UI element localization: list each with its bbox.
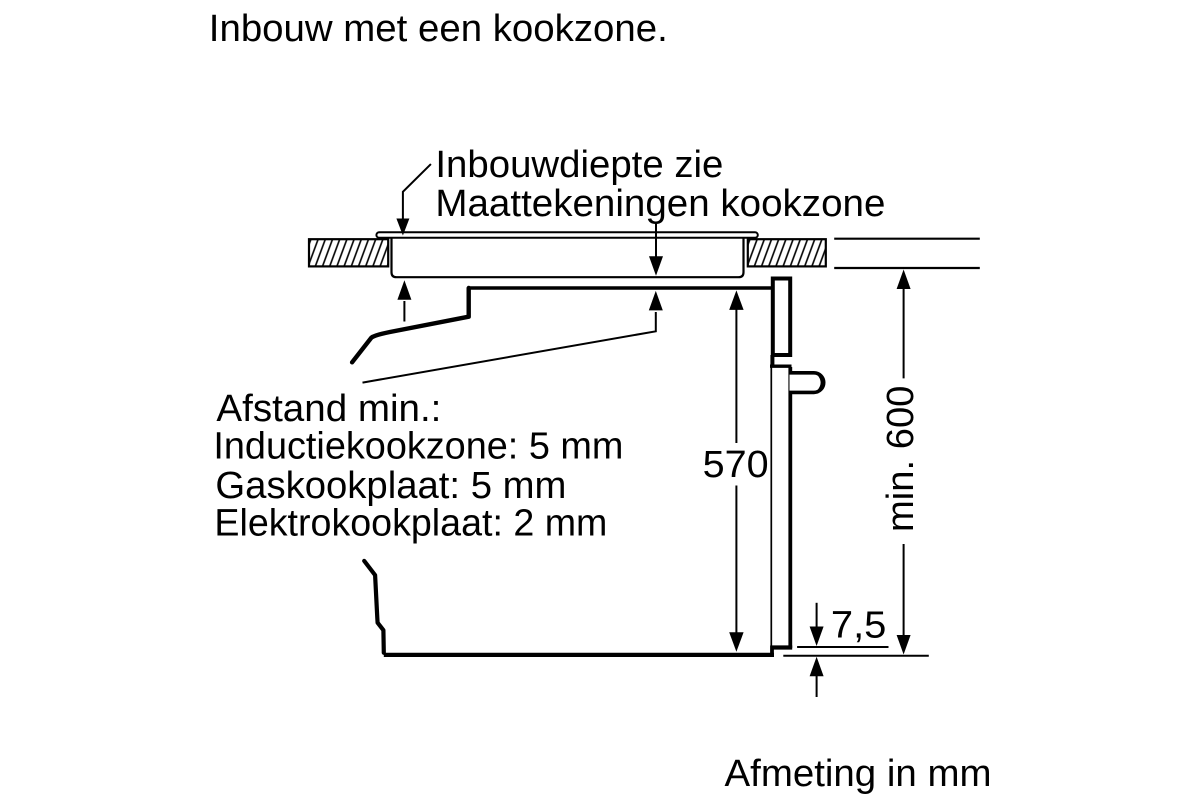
svg-text:Inbouw met een kookzone.: Inbouw met een kookzone.	[209, 8, 668, 50]
svg-text:Maattekeningen kookzone: Maattekeningen kookzone	[435, 183, 885, 225]
svg-text:7,5: 7,5	[831, 604, 887, 646]
svg-text:Afstand min.:: Afstand min.:	[216, 388, 441, 430]
svg-text:Inductiekookzone: 5 mm: Inductiekookzone: 5 mm	[213, 425, 623, 467]
svg-text:Inbouwdiepte zie: Inbouwdiepte zie	[435, 144, 723, 186]
svg-text:Afmeting in mm: Afmeting in mm	[725, 753, 992, 795]
svg-text:Elektrokookplaat: 2 mm: Elektrokookplaat: 2 mm	[214, 503, 607, 545]
svg-text:min. 600: min. 600	[880, 386, 922, 532]
svg-text:Gaskookplaat: 5 mm: Gaskookplaat: 5 mm	[215, 465, 566, 507]
svg-text:570: 570	[703, 444, 769, 486]
